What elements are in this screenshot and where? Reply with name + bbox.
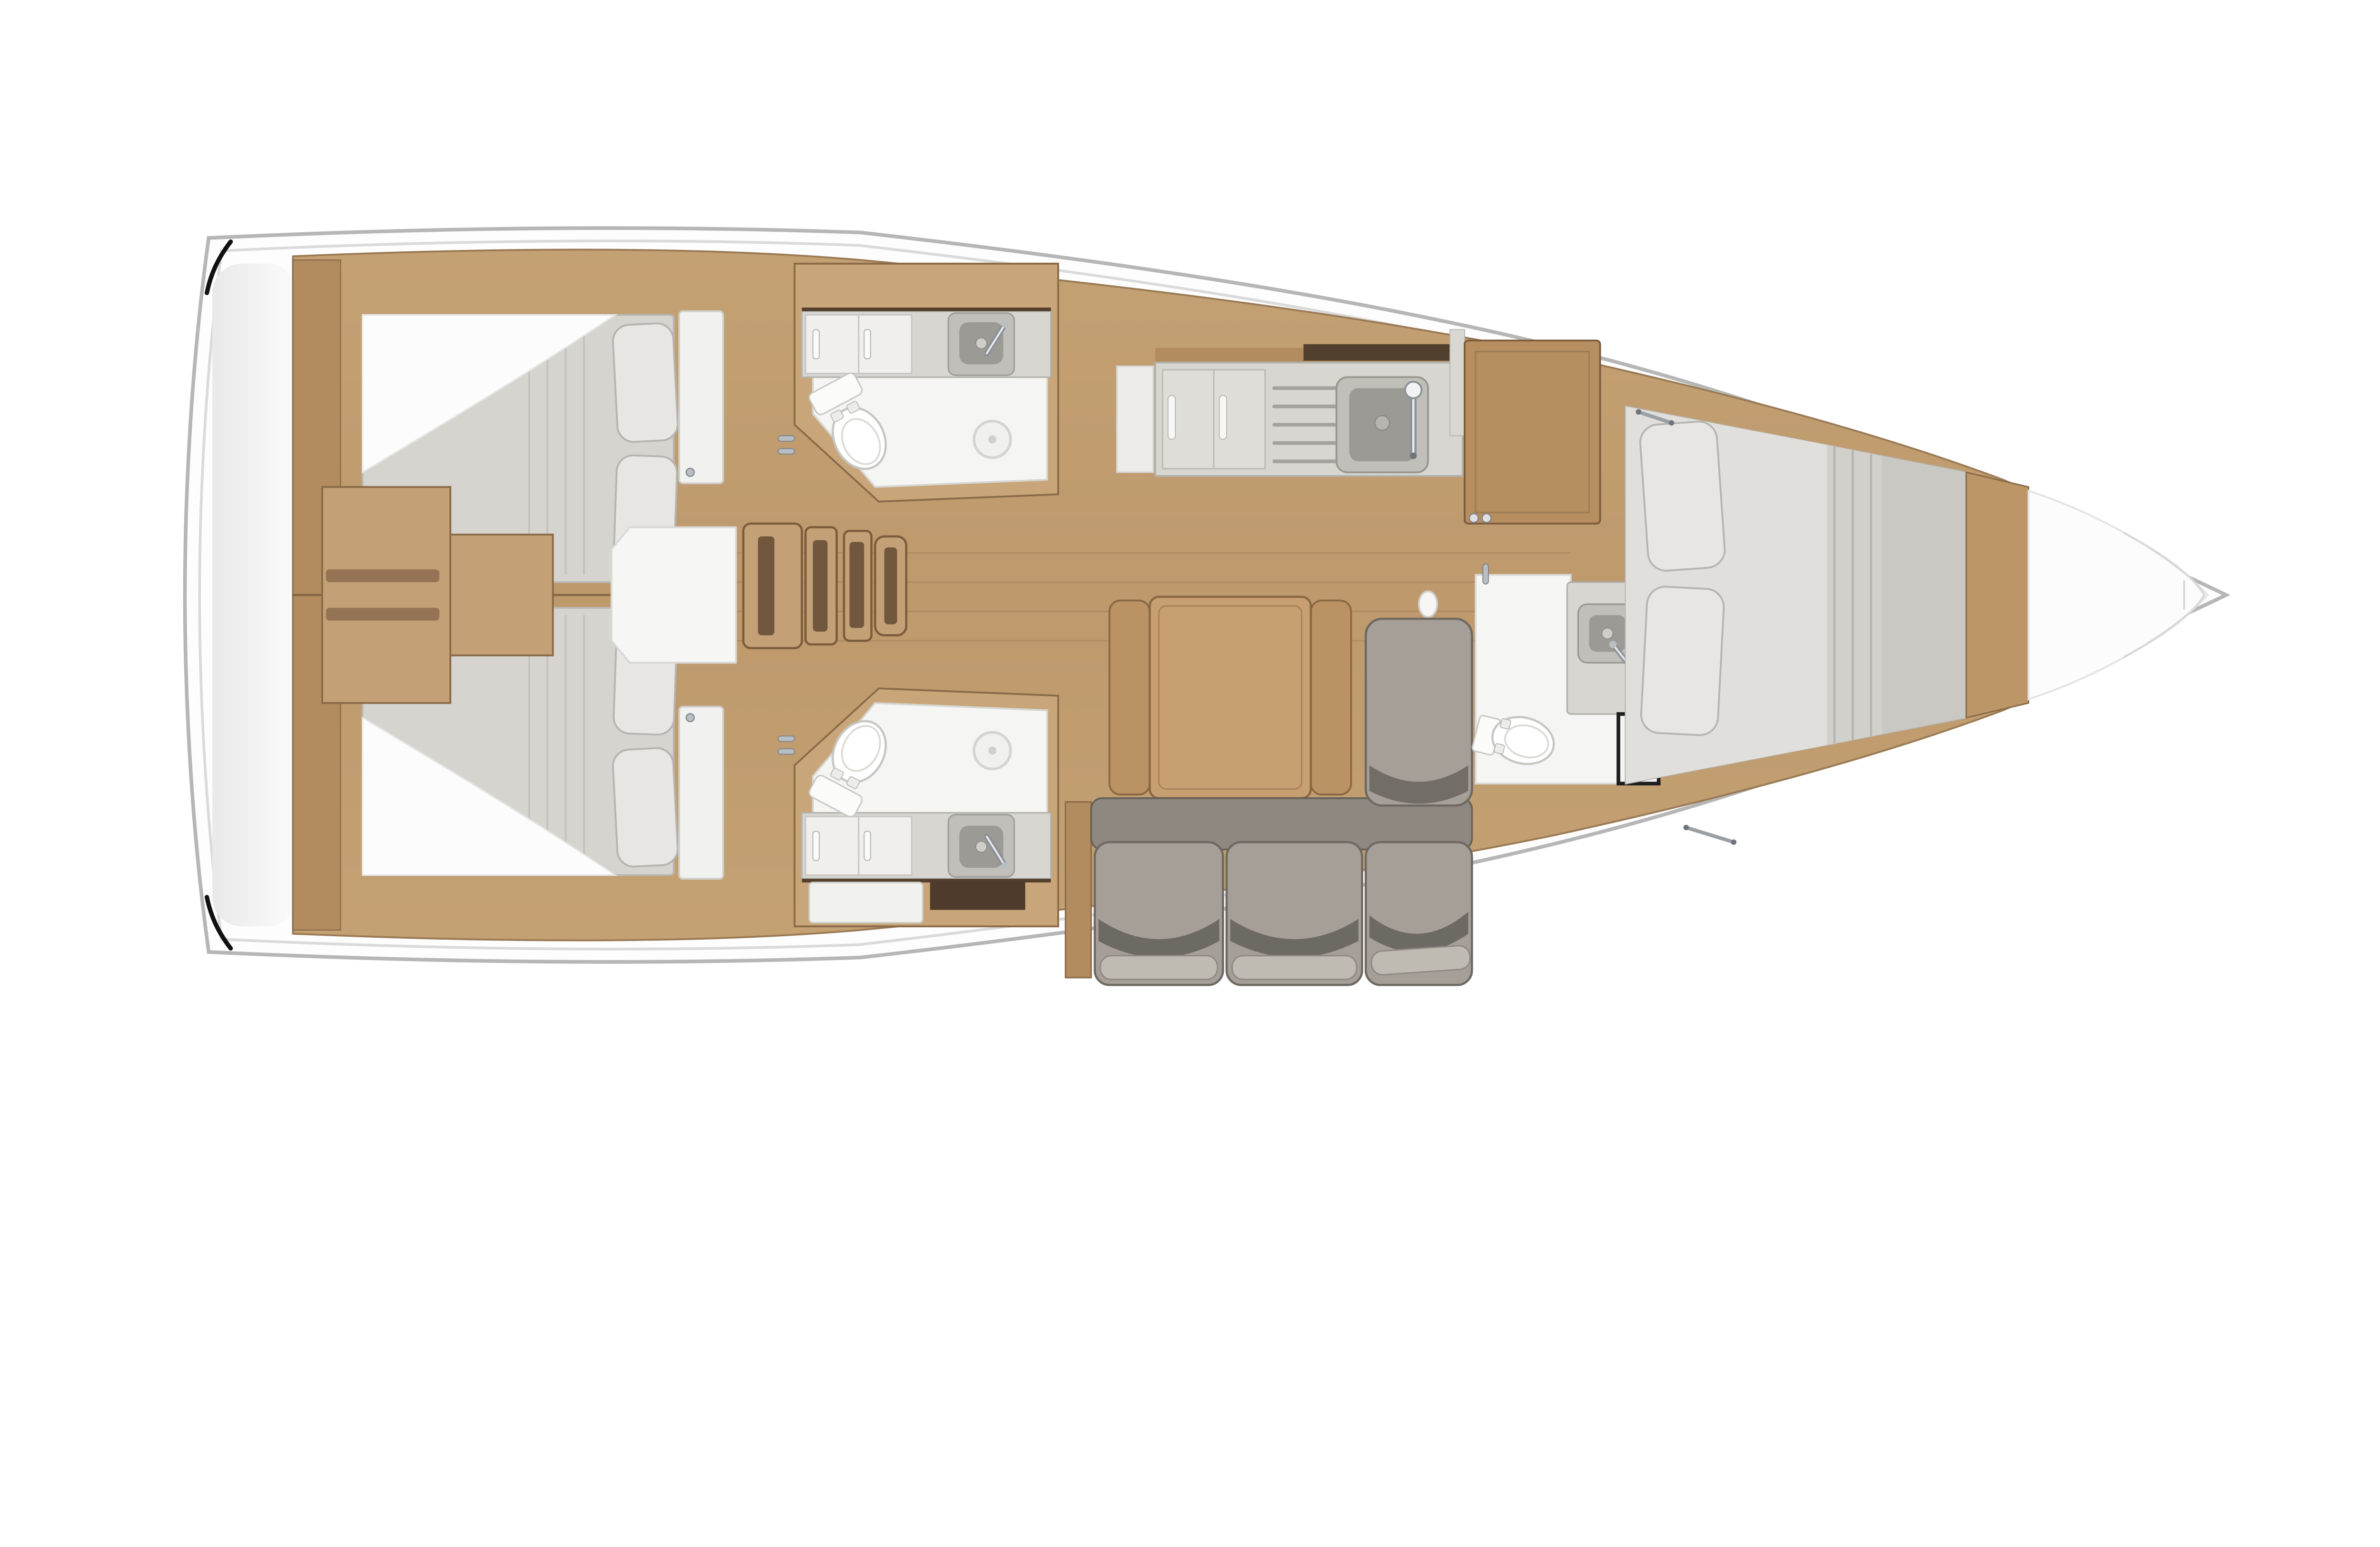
cabin-door: [679, 707, 723, 879]
cabinet-handle-icon: [1168, 396, 1175, 439]
locker-dark-trim: [930, 881, 1025, 910]
salon: [1065, 591, 1472, 985]
toilet-hinge-icon: [1500, 718, 1511, 729]
stair-tread: [805, 527, 836, 645]
stair-tread: [744, 524, 802, 648]
pillow: [1639, 420, 1726, 572]
stern-platform: [212, 264, 297, 926]
table-lamp: [1419, 591, 1437, 617]
drain-icon: [1375, 416, 1389, 430]
cabin-door: [679, 311, 723, 484]
table-leaf: [1311, 601, 1351, 795]
drain-icon: [976, 338, 987, 349]
cabinet-handle-icon: [864, 329, 870, 359]
vent-slot: [326, 608, 439, 621]
pillow: [612, 323, 679, 443]
settee-side-cabinet: [1065, 802, 1091, 978]
mattress-strut-icon: [1684, 825, 1737, 845]
wash-basin: [948, 815, 1014, 877]
door-handle-icon: [778, 448, 795, 454]
door-handle-icon: [1483, 564, 1488, 584]
berth-platform: [1966, 472, 2029, 717]
door-handle-icon: [778, 749, 795, 754]
sliding-cabinet: [805, 315, 912, 374]
door-handle-icon: [778, 436, 795, 441]
pillow: [1640, 586, 1725, 736]
cabinet-handle-icon: [1220, 396, 1227, 439]
door-handle-icon: [1482, 514, 1491, 522]
yacht-floorplan: [0, 0, 2380, 1190]
drain-icon: [976, 841, 987, 852]
cabinet-handle-icon: [864, 831, 870, 861]
bow-liner: [2029, 491, 2208, 699]
door-handle-icon: [778, 736, 795, 742]
floorplan-page: [0, 0, 2380, 1190]
toilet-hinge-icon: [1494, 743, 1505, 754]
bow-locker: [2029, 491, 2208, 699]
settee-seat-cushion: [1366, 842, 1472, 985]
berth-blanket: [1882, 456, 1966, 734]
sliding-cabinet: [805, 816, 912, 875]
stair-tread: [875, 536, 906, 635]
table-leaf: [1110, 601, 1150, 795]
galley-aft-panel: [1450, 329, 1465, 436]
sliding-cabinet: [1162, 370, 1265, 469]
settee-seat-cushion: [1227, 842, 1362, 985]
stair-tread: [844, 531, 872, 641]
door-handle-icon: [686, 468, 694, 476]
folding-table: [1110, 597, 1351, 798]
stove-dark-trim: [1303, 344, 1464, 361]
door-handle-icon: [686, 714, 694, 722]
cabinet-handle-icon: [813, 831, 819, 861]
table-center: [1150, 597, 1310, 798]
vanity-drawer: [809, 883, 922, 923]
vent-slot: [326, 569, 439, 582]
door-handle-icon: [1469, 514, 1478, 522]
drain-icon: [1602, 628, 1613, 639]
pillow: [612, 747, 679, 867]
forward-bulkhead: [1450, 329, 1600, 524]
cabin-door-open: [1465, 340, 1600, 524]
cabinet-handle-icon: [813, 329, 819, 359]
wash-basin: [948, 313, 1014, 376]
galley-end-panel: [1117, 366, 1153, 472]
settee-seat-cushion: [1095, 842, 1223, 985]
landing: [612, 527, 736, 663]
galley: [1117, 344, 1465, 476]
